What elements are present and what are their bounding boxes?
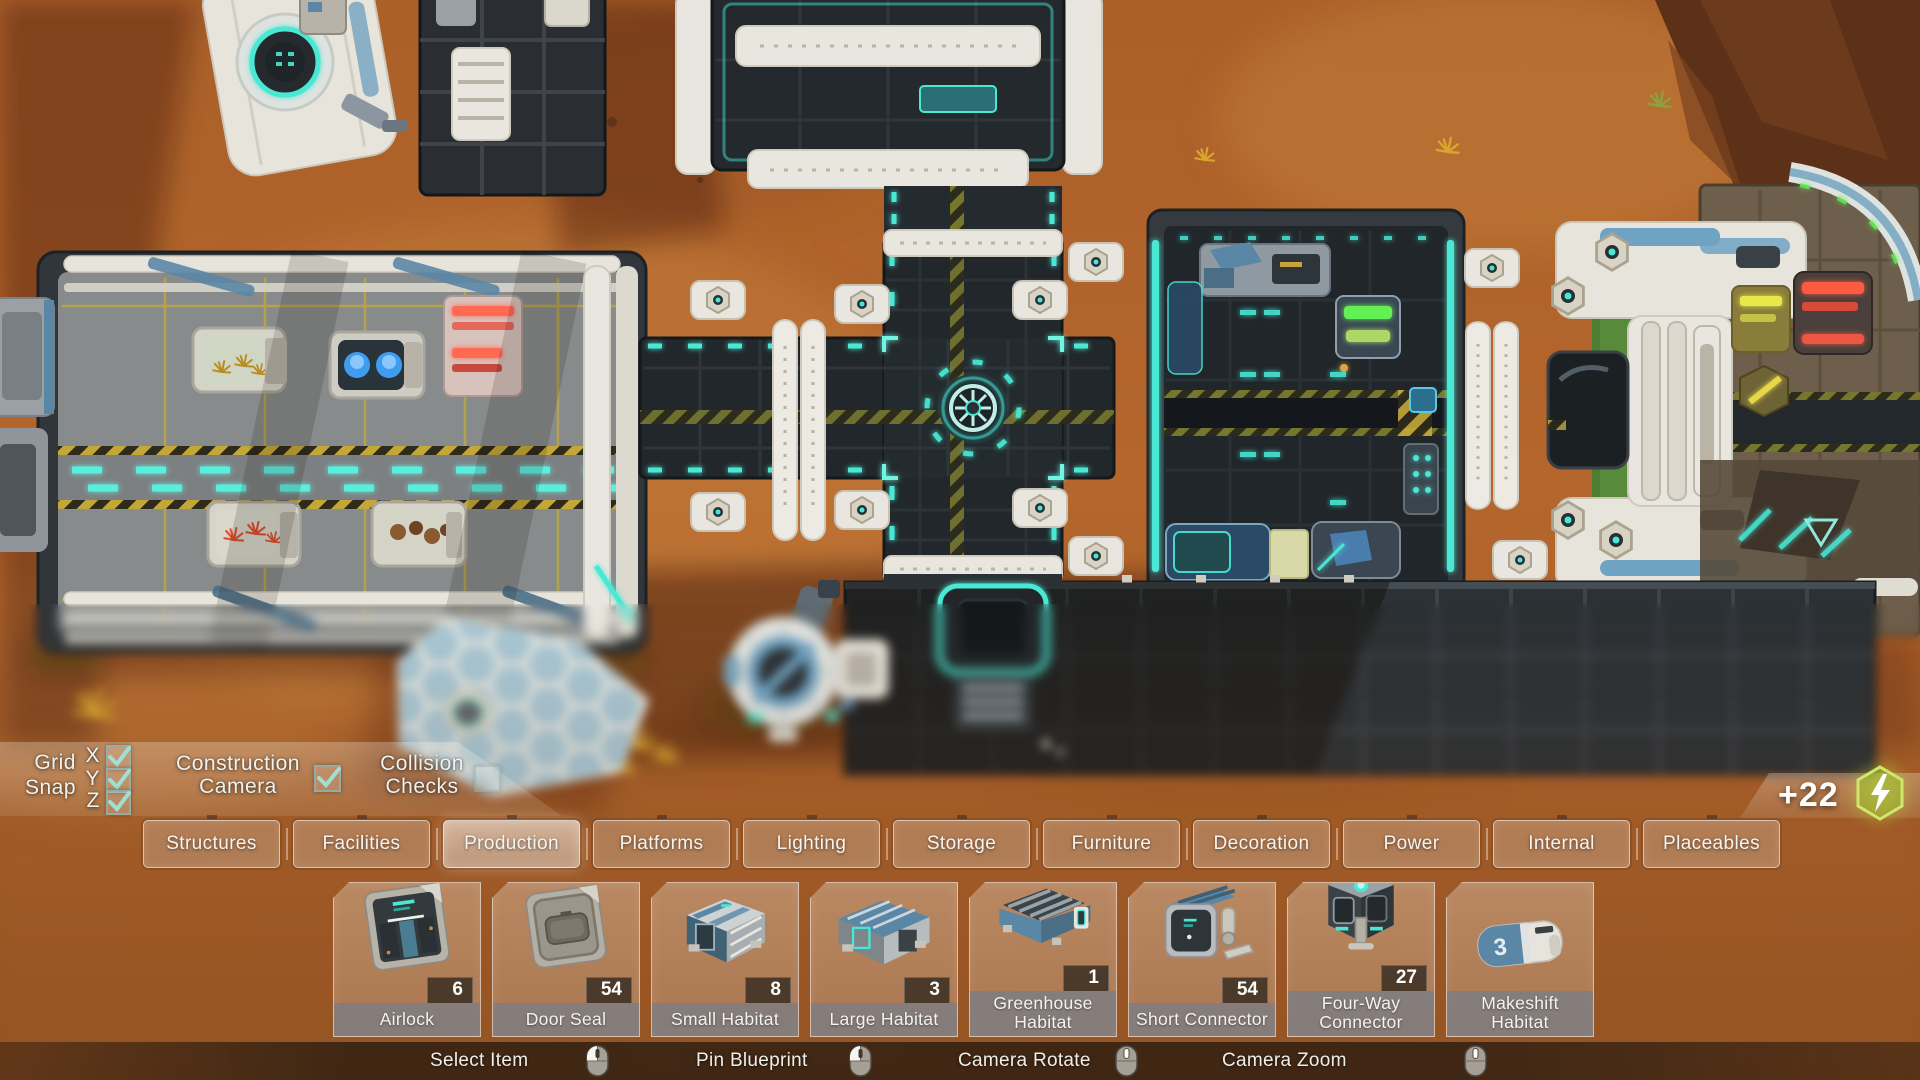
blueprint-card-makeshift-habitat[interactable]: 3 Makeshift Habitat xyxy=(1446,882,1594,1037)
item-label: Small Habitat xyxy=(652,1003,798,1036)
axis-z-label: Z xyxy=(78,789,100,812)
item-label: Greenhouse Habitat xyxy=(970,991,1116,1036)
grid-label: Grid xyxy=(0,751,76,774)
hint-camera-rotate: Camera Rotate xyxy=(958,1050,1091,1072)
mouse-left-icon xyxy=(849,1045,872,1080)
greenhouse-habitat-thumbnail xyxy=(970,883,1116,965)
blueprint-card-four-way-connector[interactable]: 27 Four-Way Connector xyxy=(1287,882,1435,1037)
checkmark-icon xyxy=(312,761,344,793)
power-surplus-value: +22 xyxy=(1778,776,1839,815)
four-way-connector-thumbnail xyxy=(1288,883,1434,965)
item-label: Short Connector xyxy=(1129,1003,1275,1036)
large-habitat-thumbnail xyxy=(811,883,957,977)
airlock-thumbnail xyxy=(334,883,480,977)
axis-y-label: Y xyxy=(78,767,100,790)
game-screen: Grid Snap X Y Z Construction Camera Coll… xyxy=(0,0,1920,1080)
item-count-badge: 54 xyxy=(1222,977,1268,1003)
item-label: Door Seal xyxy=(493,1003,639,1036)
axis-z-checkbox[interactable] xyxy=(106,790,131,815)
hint-pin-blueprint: Pin Blueprint xyxy=(696,1050,808,1072)
tab-storage[interactable]: Storage xyxy=(893,820,1030,868)
snap-label: Snap xyxy=(0,776,76,799)
tab-structures[interactable]: Structures xyxy=(143,820,280,868)
blueprint-card-row: 6 Airlock 54 Door Seal xyxy=(333,882,1594,1037)
tab-power[interactable]: Power xyxy=(1343,820,1480,868)
mouse-middle-icon xyxy=(1464,1045,1487,1080)
tab-internal[interactable]: Internal xyxy=(1493,820,1630,868)
tab-placeables[interactable]: Placeables xyxy=(1643,820,1780,868)
item-label: Large Habitat xyxy=(811,1003,957,1036)
tab-furniture[interactable]: Furniture xyxy=(1043,820,1180,868)
item-count-badge: 6 xyxy=(427,977,473,1003)
makeshift-habitat-thumbnail: 3 xyxy=(1447,883,1593,991)
door-seal-thumbnail xyxy=(493,883,639,977)
tab-decoration[interactable]: Decoration xyxy=(1193,820,1330,868)
item-label: Makeshift Habitat xyxy=(1447,991,1593,1036)
small-habitat-thumbnail xyxy=(652,883,798,977)
controls-hint-bar: Select Item Pin Blueprint Camera Rotate xyxy=(0,1042,1920,1080)
category-tab-bar: Structures Facilities Production Platfor… xyxy=(143,820,1780,868)
item-label: Airlock xyxy=(334,1003,480,1036)
collision-checks-label: Collision Checks xyxy=(374,752,470,798)
blueprint-card-airlock[interactable]: 6 Airlock xyxy=(333,882,481,1037)
svg-text:3: 3 xyxy=(1492,934,1508,961)
blueprint-card-small-habitat[interactable]: 8 Small Habitat xyxy=(651,882,799,1037)
axis-x-label: X xyxy=(78,744,100,767)
item-label: Four-Way Connector xyxy=(1288,991,1434,1036)
blueprint-card-short-connector[interactable]: 54 Short Connector xyxy=(1128,882,1276,1037)
hint-select-item: Select Item xyxy=(430,1050,528,1072)
tab-production[interactable]: Production xyxy=(443,820,580,868)
tab-platforms[interactable]: Platforms xyxy=(593,820,730,868)
blueprint-card-door-seal[interactable]: 54 Door Seal xyxy=(492,882,640,1037)
mouse-middle-icon xyxy=(1115,1045,1138,1080)
item-count-badge: 27 xyxy=(1381,965,1427,991)
item-count-badge: 3 xyxy=(904,977,950,1003)
construction-camera-label: Construction Camera xyxy=(168,752,308,798)
blueprint-card-large-habitat[interactable]: 3 Large Habitat xyxy=(810,882,958,1037)
tab-lighting[interactable]: Lighting xyxy=(743,820,880,868)
construction-camera-checkbox[interactable] xyxy=(314,765,341,792)
short-connector-thumbnail xyxy=(1129,883,1275,977)
collision-checks-checkbox[interactable] xyxy=(474,765,501,792)
item-count-badge: 8 xyxy=(745,977,791,1003)
tab-facilities[interactable]: Facilities xyxy=(293,820,430,868)
item-count-badge: 1 xyxy=(1063,965,1109,991)
item-count-badge: 54 xyxy=(586,977,632,1003)
lightning-icon xyxy=(1852,764,1908,827)
blueprint-card-greenhouse-habitat[interactable]: 1 Greenhouse Habitat xyxy=(969,882,1117,1037)
checkmark-icon xyxy=(104,786,134,816)
hint-camera-zoom: Camera Zoom xyxy=(1222,1050,1347,1072)
mouse-left-icon xyxy=(586,1045,609,1080)
